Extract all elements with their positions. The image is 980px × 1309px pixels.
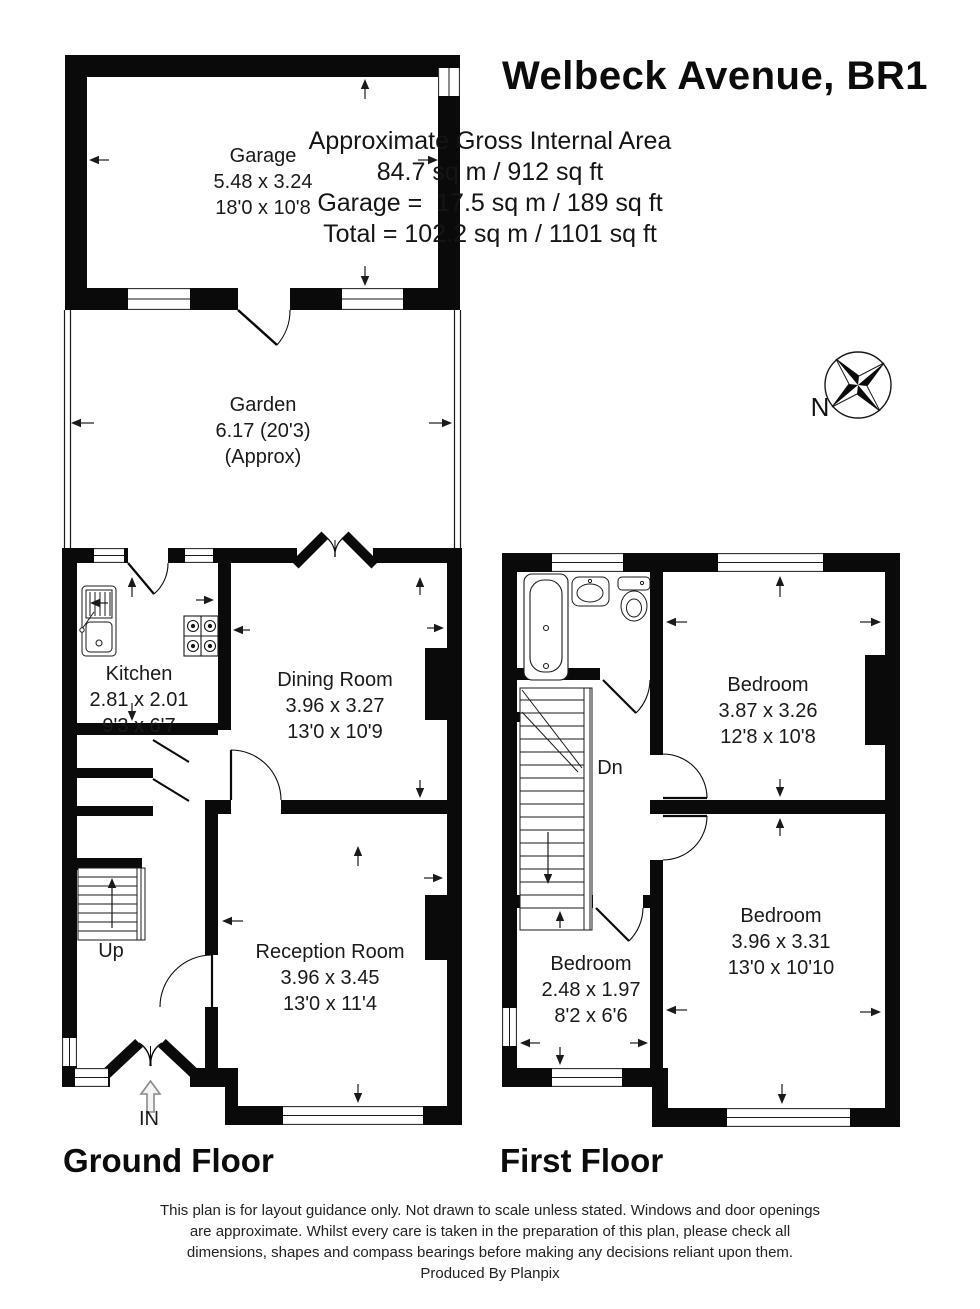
reception-room-label: Reception Room 3.96 x 3.45 13'0 x 11'4 bbox=[256, 939, 405, 1017]
area-summary-heading: Approximate Gross Internal Area bbox=[0, 126, 980, 157]
bedroom1-name: Bedroom bbox=[719, 672, 818, 698]
entrance-label: IN bbox=[139, 1108, 159, 1131]
bedroom1-metric: 3.87 x 3.26 bbox=[719, 698, 818, 724]
bathroom-sink-icon bbox=[572, 577, 609, 606]
stairs-down-label: Dn bbox=[597, 757, 623, 780]
compass-icon bbox=[825, 352, 891, 418]
disclaimer: This plan is for layout guidance only. N… bbox=[0, 1200, 980, 1284]
area-summary-total: Total = 102.2 sq m / 1101 sq ft bbox=[0, 219, 980, 250]
bedroom3-name: Bedroom bbox=[542, 951, 641, 977]
area-summary-garage: Garage = 17.5 sq m / 189 sq ft bbox=[0, 188, 980, 219]
garden-metric: 6.17 (20'3) bbox=[216, 418, 311, 444]
bedroom3-imperial: 8'2 x 6'6 bbox=[542, 1003, 641, 1029]
floorplan-page: Welbeck Avenue, BR1 Approximate Gross In… bbox=[0, 0, 980, 1309]
garden-label: Garden 6.17 (20'3) (Approx) bbox=[216, 392, 311, 470]
disclaimer-line2: are approximate. Whilst every care is ta… bbox=[0, 1221, 980, 1242]
reception-room-name: Reception Room bbox=[256, 939, 405, 965]
bedroom2-label: Bedroom 3.96 x 3.31 13'0 x 10'10 bbox=[728, 903, 835, 981]
page-title: Welbeck Avenue, BR1 bbox=[502, 54, 928, 99]
first-floor-title: First Floor bbox=[500, 1142, 663, 1180]
disclaimer-credit: Produced By Planpix bbox=[0, 1263, 980, 1284]
garden-imperial: (Approx) bbox=[216, 444, 311, 470]
reception-room-metric: 3.96 x 3.45 bbox=[256, 965, 405, 991]
ground-floor-title: Ground Floor bbox=[63, 1142, 274, 1180]
toilet-icon bbox=[618, 577, 650, 621]
kitchen-metric: 2.81 x 2.01 bbox=[90, 687, 189, 713]
area-summary-internal: 84.7 sq m / 912 sq ft bbox=[0, 157, 980, 188]
ground-floor-walls bbox=[62, 548, 462, 1125]
bedroom2-name: Bedroom bbox=[728, 903, 835, 929]
garden-name: Garden bbox=[216, 392, 311, 418]
area-summary: Approximate Gross Internal Area 84.7 sq … bbox=[0, 126, 980, 250]
bedroom1-imperial: 12'8 x 10'8 bbox=[719, 724, 818, 750]
dining-room-name: Dining Room bbox=[277, 667, 393, 693]
compass-north-label: N bbox=[811, 392, 830, 423]
garage-imperial: 18'0 x 10'8 bbox=[214, 195, 313, 221]
disclaimer-line1: This plan is for layout guidance only. N… bbox=[0, 1200, 980, 1221]
dining-room-imperial: 13'0 x 10'9 bbox=[277, 719, 393, 745]
stairs-up-label: Up bbox=[98, 940, 124, 963]
staircase-down bbox=[520, 688, 592, 930]
bedroom3-metric: 2.48 x 1.97 bbox=[542, 977, 641, 1003]
bedroom2-imperial: 13'0 x 10'10 bbox=[728, 955, 835, 981]
bedroom1-label: Bedroom 3.87 x 3.26 12'8 x 10'8 bbox=[719, 672, 818, 750]
kitchen-label: Kitchen 2.81 x 2.01 9'3 x 6'7 bbox=[90, 661, 189, 739]
dining-room-label: Dining Room 3.96 x 3.27 13'0 x 10'9 bbox=[277, 667, 393, 745]
stove-icon bbox=[184, 616, 218, 656]
reception-room-imperial: 13'0 x 11'4 bbox=[256, 991, 405, 1017]
garage-label: Garage 5.48 x 3.24 18'0 x 10'8 bbox=[214, 143, 313, 221]
disclaimer-line3: dimensions, shapes and compass bearings … bbox=[0, 1242, 980, 1263]
garage-door bbox=[238, 288, 290, 345]
garage-name: Garage bbox=[214, 143, 313, 169]
kitchen-name: Kitchen bbox=[90, 661, 189, 687]
dining-room-metric: 3.96 x 3.27 bbox=[277, 693, 393, 719]
bedroom2-metric: 3.96 x 3.31 bbox=[728, 929, 835, 955]
garage-metric: 5.48 x 3.24 bbox=[214, 169, 313, 195]
kitchen-imperial: 9'3 x 6'7 bbox=[90, 713, 189, 739]
bathtub-icon bbox=[524, 574, 568, 680]
bedroom3-label: Bedroom 2.48 x 1.97 8'2 x 6'6 bbox=[542, 951, 641, 1029]
kitchen-sink-icon bbox=[80, 586, 116, 656]
